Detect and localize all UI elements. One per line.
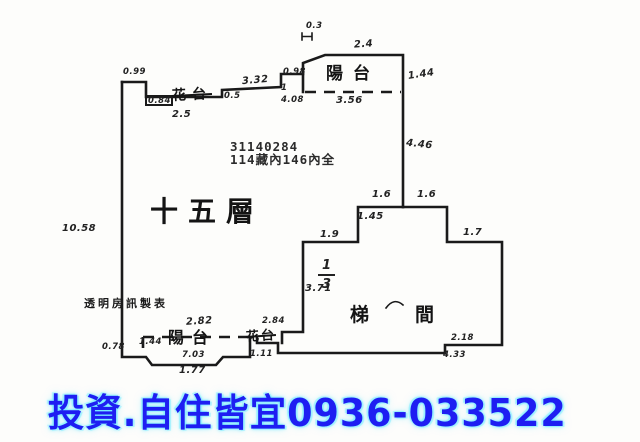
- dim-corner-box: 0.84: [148, 97, 171, 106]
- stairwell-label-2: 間: [415, 306, 434, 325]
- arrow-mark: [386, 302, 403, 308]
- dim-balcony-top-inner: 3.56: [336, 96, 363, 106]
- advertisement-text: 投資.自住皆宜0936-033522: [0, 382, 614, 437]
- dim-balcony-bottom-top: 2.82: [186, 316, 213, 328]
- dim-balcony-top-width: 2.4: [354, 39, 374, 50]
- flowerbed-top-label: 花台: [172, 87, 213, 103]
- floorplan-scan: 31140284 114藏內146內全 十五層 陽台 陽台 花台 花台 梯 間 …: [0, 0, 640, 442]
- dim-step-b: 4.08: [281, 96, 304, 105]
- stairwell-label-1: 梯: [350, 306, 369, 325]
- dim-balcony-bottom-outer: 1.77: [179, 366, 206, 376]
- wall-top-left: [122, 74, 303, 97]
- dim-top-offset: 0.3: [306, 22, 323, 31]
- flowerbed-bottom-label: 花台: [246, 329, 277, 344]
- dim-corner-tl: 0.99: [123, 68, 146, 77]
- dim-stair-left-wall: 3.71: [305, 284, 332, 294]
- dim-balcony-bottom-left: 1.44: [139, 338, 162, 347]
- balcony-top-label: 陽台: [326, 66, 380, 83]
- dim-step-a: 0.98: [283, 68, 306, 77]
- dim-step-right: 1.7: [463, 228, 482, 238]
- dim-stair-bottom-b: 4.33: [443, 351, 466, 360]
- dim-notch: 0.5: [224, 92, 241, 101]
- dim-step-tick: 1: [281, 84, 287, 93]
- tick-mark: [302, 33, 312, 40]
- dim-step-left: 1.9: [320, 230, 339, 240]
- fraction-numerator: 1: [318, 258, 335, 276]
- registration-line2: 114藏內146內全: [230, 154, 335, 167]
- balcony-bottom-label: 陽台: [168, 330, 216, 346]
- stairwell-left: [282, 207, 403, 343]
- dim-bump-left-top: 1.6: [372, 190, 391, 200]
- dim-bump-right-top: 1.6: [417, 190, 436, 200]
- dim-flowerbed-top-width: 2.5: [172, 110, 191, 120]
- dim-flowerbed-bottom-b: 1.11: [250, 350, 273, 359]
- dim-balcony-bottom-width: 7.03: [182, 351, 205, 360]
- dim-stair-bottom-a: 2.18: [451, 334, 474, 343]
- dim-flowerbed-bottom-a: 2.84: [262, 317, 285, 326]
- floorplan-outline: [0, 0, 640, 442]
- dim-corner-bl: 0.78: [102, 343, 125, 352]
- dim-left-wall: 10.58: [62, 224, 96, 234]
- floor-label: 十五層: [150, 198, 264, 226]
- maker-note: 透明房訊製表: [84, 298, 168, 309]
- dim-bump-inner: 1.45: [357, 212, 384, 222]
